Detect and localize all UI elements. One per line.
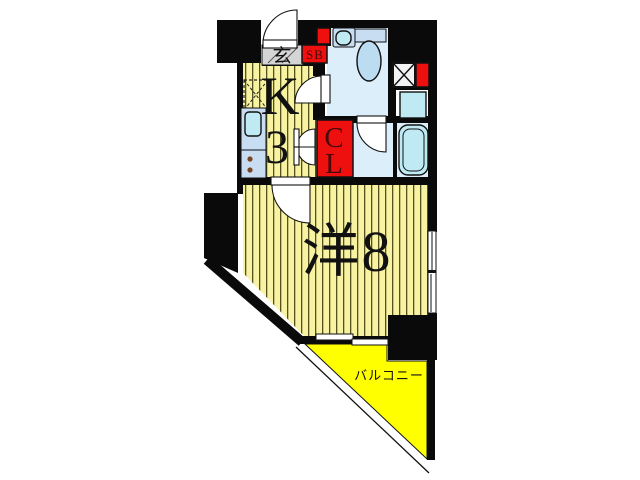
closet-door-leaf: [294, 129, 299, 147]
main-room-label: 洋8: [301, 219, 392, 284]
wall-column-top-left: [217, 20, 261, 63]
balcony-label: バルコニー: [354, 368, 424, 383]
red-shaft-box-right: [416, 63, 429, 87]
right-window-latch: [428, 270, 436, 273]
entrance-label: 玄: [272, 45, 291, 67]
balcony-window-pane-right: [352, 339, 388, 345]
wall-column-bottom-right: [388, 315, 437, 360]
wall-washroom-divider: [393, 123, 397, 177]
closet-door-leaf: [294, 147, 299, 165]
closet-label-l: L: [325, 148, 343, 180]
wall-balcony-right: [427, 360, 435, 460]
kitchen-sink: [245, 112, 261, 136]
stove-burner: [247, 167, 252, 172]
balcony-window-pane-left: [316, 334, 353, 340]
toilet-tank: [352, 29, 386, 42]
kitchen-room-door-leaf: [271, 177, 310, 185]
toilet-bowl: [357, 41, 381, 81]
kitchen-size-label: 3: [265, 121, 289, 174]
toilet-door-leaf: [321, 75, 330, 103]
washroom-door-leaf: [357, 116, 386, 123]
wall-right-upper: [428, 27, 437, 232]
stove-burner: [247, 156, 252, 161]
kitchen-letter-label: K: [261, 66, 300, 126]
red-shaft-box-top: [317, 28, 330, 44]
floorplan-drawing: 玄 SB K 3 C L 洋8 バルコニー: [0, 0, 640, 480]
washer-pan: [400, 92, 426, 118]
floorplan-page: 玄 SB K 3 C L 洋8 バルコニー: [0, 0, 640, 480]
bathroom-sink-bowl: [336, 31, 351, 45]
shoe-box-label: SB: [306, 47, 324, 62]
